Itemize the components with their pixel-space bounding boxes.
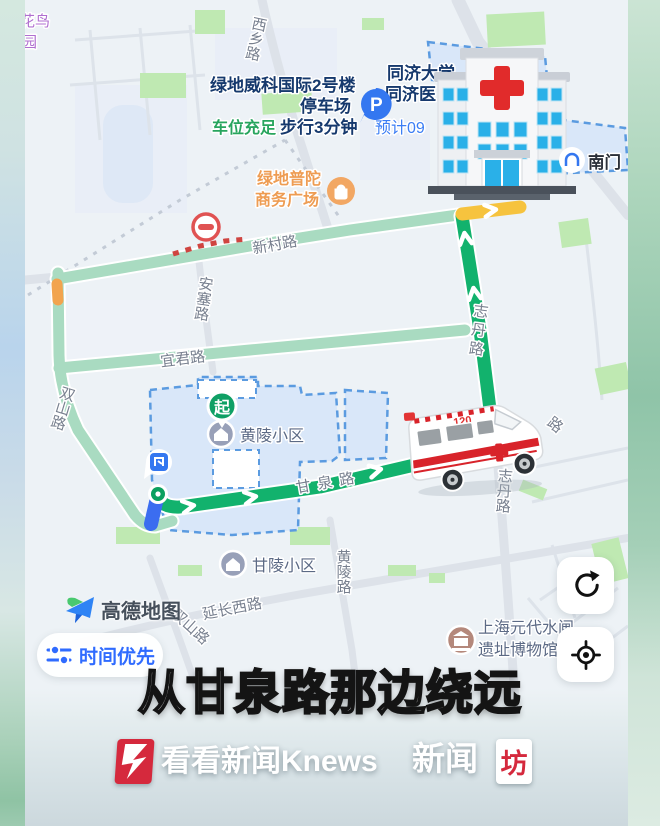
congestion-segment-orange [57, 284, 58, 300]
parking-icon-letter: P [370, 95, 383, 116]
plaza-icon [327, 177, 355, 205]
footer-brands: 看看新闻Knews 新闻 坊 [0, 736, 660, 788]
parking-name-line1: 绿地威科国际2号楼 [210, 75, 355, 95]
amap-logo: 高德地图 [62, 594, 181, 624]
parking-name-line2: 停车场 [300, 96, 351, 116]
no-entry-icon [193, 214, 219, 240]
huaniao-label-1: 花鸟 [20, 13, 50, 30]
knews-wordmark: 看看新闻Knews [161, 739, 378, 784]
hospital-name-line2: 同济医 [385, 84, 436, 104]
south-gate-label: 南门 [588, 152, 621, 172]
refresh-icon [567, 567, 605, 605]
museum-icon [447, 626, 475, 654]
amap-logo-icon [62, 594, 96, 624]
amap-logo-text: 高德地图 [101, 595, 181, 624]
xinwenfang-wordmark: 新闻 [412, 737, 478, 784]
huangling-road-label: 黄陵路 [335, 549, 352, 594]
video-frame: 花鸟 园 西乡路 新村路 安塞路 宜君路 双山路 甘泉路 志丹路 志丹路 路 黄… [0, 0, 660, 826]
route-start-dot [148, 484, 168, 504]
knews-bird-icon [114, 739, 154, 784]
walk-time: 步行3分钟 [280, 117, 357, 137]
refresh-button[interactable] [557, 557, 614, 614]
eta-text: 预计09 [375, 119, 425, 137]
xinwenfang-box-logo: 坊 [496, 739, 532, 784]
start-badge-char: 起 [213, 398, 231, 417]
plaza-line2: 商务广场 [255, 190, 319, 209]
knews-logo [114, 739, 154, 784]
xinwenfang-box-char: 坊 [501, 742, 528, 781]
plaza-line1: 绿地普陀 [257, 169, 321, 188]
huaniao-label-2: 园 [22, 34, 37, 51]
ganling-estate-label: 甘陵小区 [252, 557, 316, 575]
parking-status: 车位充足 [212, 118, 277, 137]
huangling-estate-label: 黄陵小区 [240, 427, 304, 445]
ganling-estate-icon [220, 551, 246, 577]
video-caption: 从甘泉路那边绕远 [0, 654, 660, 723]
